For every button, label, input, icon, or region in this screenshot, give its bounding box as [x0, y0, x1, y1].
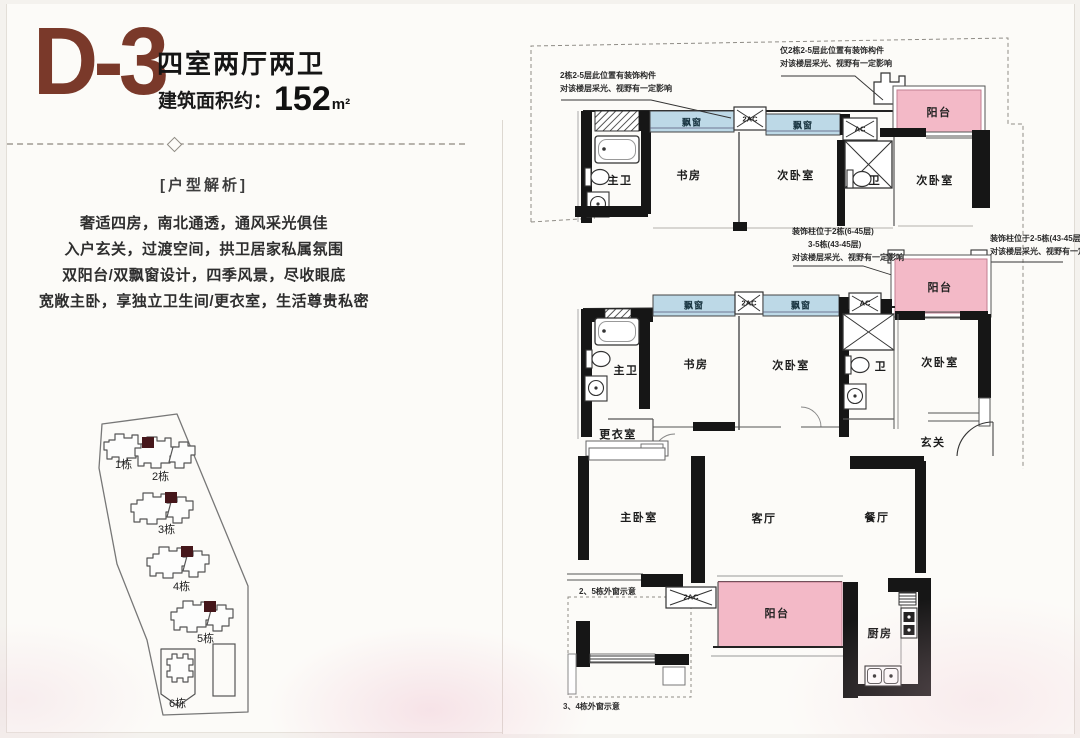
- page-fold-line: [502, 120, 503, 734]
- annotation-decorative-member-top: 2栋2-5层此位置有装饰构件 对该楼层采光、视野有一定影响: [560, 70, 672, 96]
- analysis-line: 双阳台/双飘窗设计，四季风景，尽收眼底: [15, 263, 393, 289]
- room-label-master-bedroom: 主卧室: [620, 509, 658, 525]
- unit-code: D-3: [33, 14, 164, 110]
- bay-window-label: 飘窗: [682, 116, 702, 129]
- ac-unit-label: 2AC: [741, 299, 756, 308]
- dashed-divider: [7, 143, 465, 145]
- room-label-study-upper: 书房: [677, 167, 702, 183]
- building-4: [147, 546, 209, 578]
- analysis-line: 入户玄关，过渡空间，拱卫居家私属氛围: [15, 237, 393, 263]
- area-label: 建筑面积约：: [158, 86, 272, 115]
- highlighted-unit: [181, 546, 193, 557]
- annotation-decorative-column-right: 装饰柱位于2-5栋(43-45层) 对该楼层采光、视野有一定影响: [990, 233, 1080, 259]
- room-label-dining-room: 餐厅: [865, 509, 890, 525]
- ac-unit-label: 2AC: [683, 593, 698, 602]
- balcony-label-upper: 阳台: [927, 104, 952, 120]
- building-2: [135, 437, 195, 468]
- annotation-line: 对该楼层采光、视野有一定影响: [792, 252, 904, 265]
- building-5: [171, 601, 233, 632]
- floor-plan-page: 主卫 书房 飘窗 2AC 飘窗 次卧室 AC 卫 阳台 次卧室 飘窗 2AC 飘…: [503, 4, 1075, 734]
- annotation-line: 仅2栋2-5层此位置有装饰构件: [780, 45, 892, 58]
- scanned-floorplan-page: D-3 四室两厅两卫 建筑面积约： 152 m² [户型解析] 奢适四房，南北通…: [0, 0, 1080, 738]
- building-label: 6栋: [169, 696, 186, 710]
- ac-unit-label: 2AC: [742, 115, 757, 124]
- window-note-buildings-3-4: 3、4栋外窗示意: [563, 701, 620, 712]
- analysis-title: [户型解析]: [15, 174, 393, 195]
- room-label-master-bath: 主卫: [614, 362, 639, 378]
- unit-type-label: 四室两厅两卫: [157, 44, 325, 81]
- ac-unit-label: AC: [855, 125, 866, 134]
- area-line: 建筑面积约： 152 m²: [158, 84, 350, 115]
- building-label: 1栋: [115, 457, 132, 471]
- site-rectangle-block: [213, 644, 235, 696]
- building-label: 5栋: [197, 631, 214, 645]
- stove-icon: [901, 608, 917, 638]
- annotation-line: 2栋2-5层此位置有装饰构件: [560, 70, 672, 83]
- highlighted-unit: [204, 601, 216, 612]
- balcony-label-mid: 阳台: [928, 279, 953, 295]
- bay-window-label: 飘窗: [793, 119, 813, 132]
- annotation-decorative-column-left: 装饰柱位于2栋(6-45层) 3-5栋(43-45层) 对该楼层采光、视野有一定…: [792, 226, 904, 264]
- diamond-ornament-icon: [167, 137, 183, 153]
- window-detail-illustration: [568, 621, 689, 694]
- building-label: 2栋: [152, 469, 169, 483]
- room-label-kitchen: 厨房: [868, 625, 893, 641]
- room-label-foyer: 玄关: [921, 434, 946, 450]
- left-page: D-3 四室两厅两卫 建筑面积约： 152 m² [户型解析] 奢适四房，南北通…: [6, 4, 504, 733]
- bay-window-label: 飘窗: [791, 299, 811, 312]
- room-label-master-bath-upper: 主卫: [608, 172, 633, 188]
- analysis-line: 奢适四房，南北通透，通风采光俱佳: [15, 211, 393, 237]
- annotation-line: 对该楼层采光、视野有一定影响: [560, 83, 672, 96]
- annotation-line: 对该楼层采光、视野有一定影响: [780, 58, 892, 71]
- room-label-bath: 卫: [875, 358, 888, 374]
- annotation-decorative-member-top-right: 仅2栋2-5层此位置有装饰构件 对该楼层采光、视野有一定影响: [780, 45, 892, 71]
- site-plan-map: 1栋 2栋 3栋 4栋 5栋 6栋: [85, 404, 265, 729]
- annotation-line: 装饰柱位于2栋(6-45层): [792, 226, 904, 239]
- area-unit: m²: [332, 96, 350, 115]
- highlighted-unit: [165, 492, 177, 503]
- room-label-dressing-room: 更衣室: [599, 426, 637, 442]
- annotation-line: 3-5栋(43-45层): [792, 239, 904, 252]
- analysis-line: 宽敞主卧，享独立卫生间/更衣室，生活尊贵私密: [15, 289, 393, 315]
- window-note-buildings-2-5: 2、5栋外窗示意: [579, 586, 636, 597]
- main-floorplan: [567, 250, 993, 698]
- room-label-bedroom-upper-right: 次卧室: [916, 172, 954, 188]
- double-sink-icon: [865, 666, 901, 686]
- room-label-bedroom-right: 次卧室: [921, 354, 959, 370]
- highlighted-unit: [142, 437, 154, 448]
- room-label-living-room: 客厅: [752, 510, 777, 526]
- room-label-study: 书房: [684, 356, 709, 372]
- bay-window-label: 飘窗: [684, 299, 704, 312]
- balcony-label-bottom: 阳台: [765, 605, 790, 621]
- room-label-bedroom-upper: 次卧室: [777, 167, 815, 183]
- analysis-section: [户型解析] 奢适四房，南北通透，通风采光俱佳 入户玄关，过渡空间，拱卫居家私属…: [15, 174, 393, 315]
- upper-floorplan: [575, 73, 990, 231]
- annotation-line: 装饰柱位于2-5栋(43-45层): [990, 233, 1080, 246]
- building-label: 4栋: [173, 579, 190, 593]
- area-value: 152: [274, 84, 331, 115]
- annotation-line: 对该楼层采光、视野有一定影响: [990, 246, 1080, 259]
- building-3: [131, 492, 193, 524]
- room-label-bedroom-mid: 次卧室: [772, 357, 810, 373]
- room-label-bath-upper: 卫: [869, 172, 882, 188]
- ac-unit-label: AC: [860, 299, 871, 308]
- building-label: 3栋: [158, 522, 175, 536]
